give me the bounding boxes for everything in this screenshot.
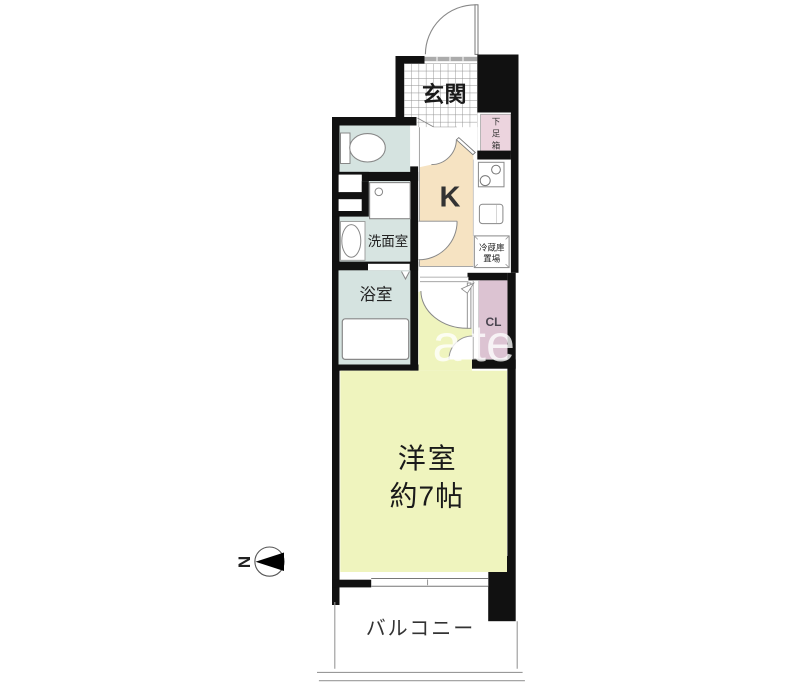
svg-text:約7帖: 約7帖 — [390, 481, 465, 512]
svg-text:e: e — [486, 315, 515, 373]
svg-text:箱: 箱 — [492, 141, 501, 151]
svg-text:冷蔵庫: 冷蔵庫 — [479, 243, 505, 253]
svg-text:玄関: 玄関 — [422, 82, 467, 107]
svg-text:t: t — [472, 315, 487, 373]
svg-text:洋室: 洋室 — [398, 443, 458, 474]
svg-text:置場: 置場 — [483, 254, 501, 264]
svg-text:N: N — [235, 556, 254, 568]
svg-text:洗面室: 洗面室 — [368, 233, 409, 249]
svg-text:浴室: 浴室 — [360, 285, 393, 304]
svg-text:K: K — [440, 182, 461, 214]
svg-text:足: 足 — [492, 129, 501, 139]
svg-text:バルコニー: バルコニー — [366, 618, 476, 640]
svg-text:下: 下 — [492, 117, 501, 127]
svg-text:a: a — [433, 315, 462, 373]
